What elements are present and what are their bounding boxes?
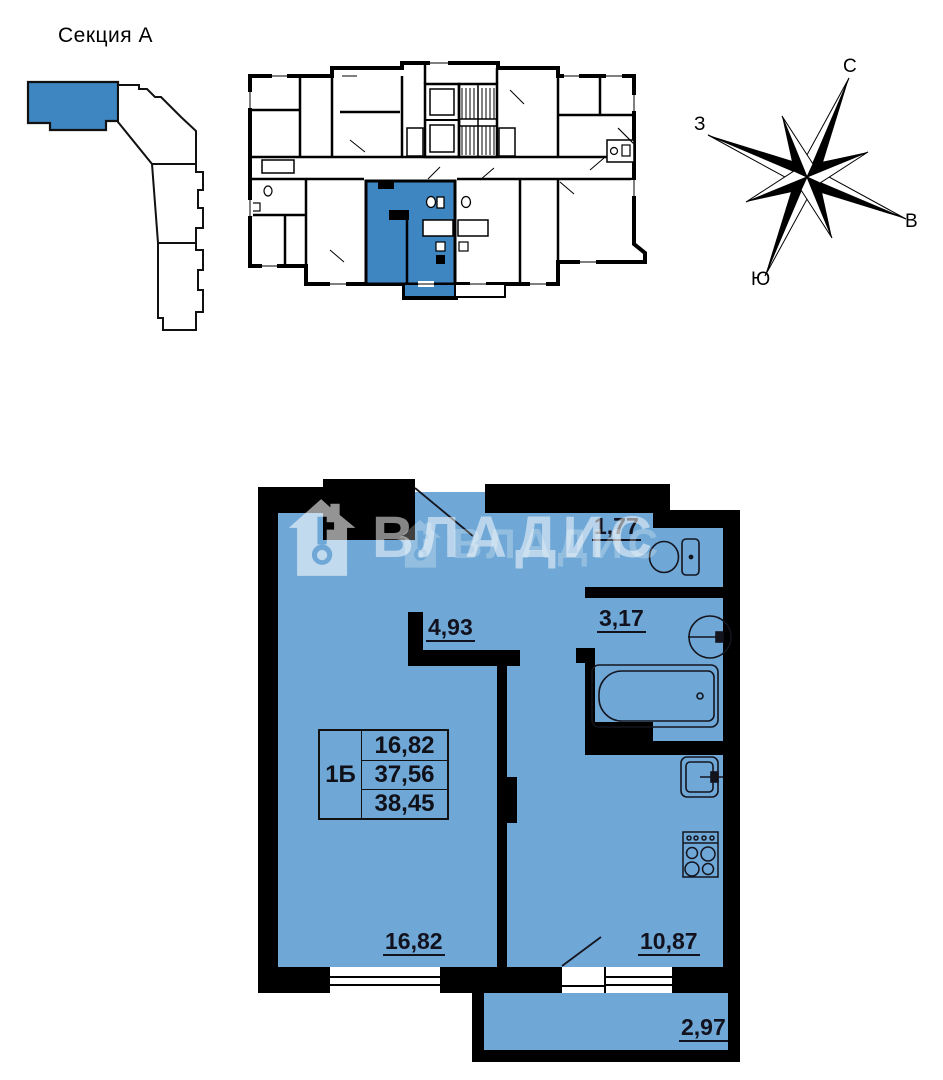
floor-plan-mini: [243, 58, 658, 304]
unit-total-area: 38,45: [362, 789, 447, 818]
compass-rose: [672, 42, 942, 312]
living-room-window: [330, 967, 440, 993]
site-plan-section-4: [158, 243, 203, 330]
living-area-label: 16,82: [383, 929, 445, 956]
kitchen-area-label: 10,87: [638, 929, 700, 956]
compass-label-north: С: [843, 56, 857, 78]
unit-type: 1Б: [320, 731, 362, 818]
kitchen-window-and-balcony-door: [562, 967, 672, 993]
section-title: Секция А: [58, 24, 153, 48]
wc-area-label: 1,77: [592, 514, 641, 541]
unit-info-table: 1Б 16,82 37,56 38,45: [318, 729, 449, 820]
compass-label-west: З: [694, 114, 705, 136]
bathroom-area-label: 3,17: [597, 606, 646, 633]
floorplan-page: Секция А: [0, 0, 943, 1080]
compass-label-east: В: [905, 211, 918, 233]
site-plan-section-2: [118, 85, 196, 164]
site-plan-shape: [14, 60, 224, 355]
compass-points: [708, 78, 906, 276]
site-plan-section-3: [152, 164, 203, 243]
site-plan-highlighted-section: [28, 82, 118, 130]
compass-label-south: Ю: [751, 269, 770, 291]
unit-area: 37,56: [362, 760, 447, 789]
unit-living-area: 16,82: [362, 731, 447, 760]
balcony-area-label: 2,97: [679, 1015, 728, 1042]
hall-area-label: 4,93: [426, 615, 475, 642]
